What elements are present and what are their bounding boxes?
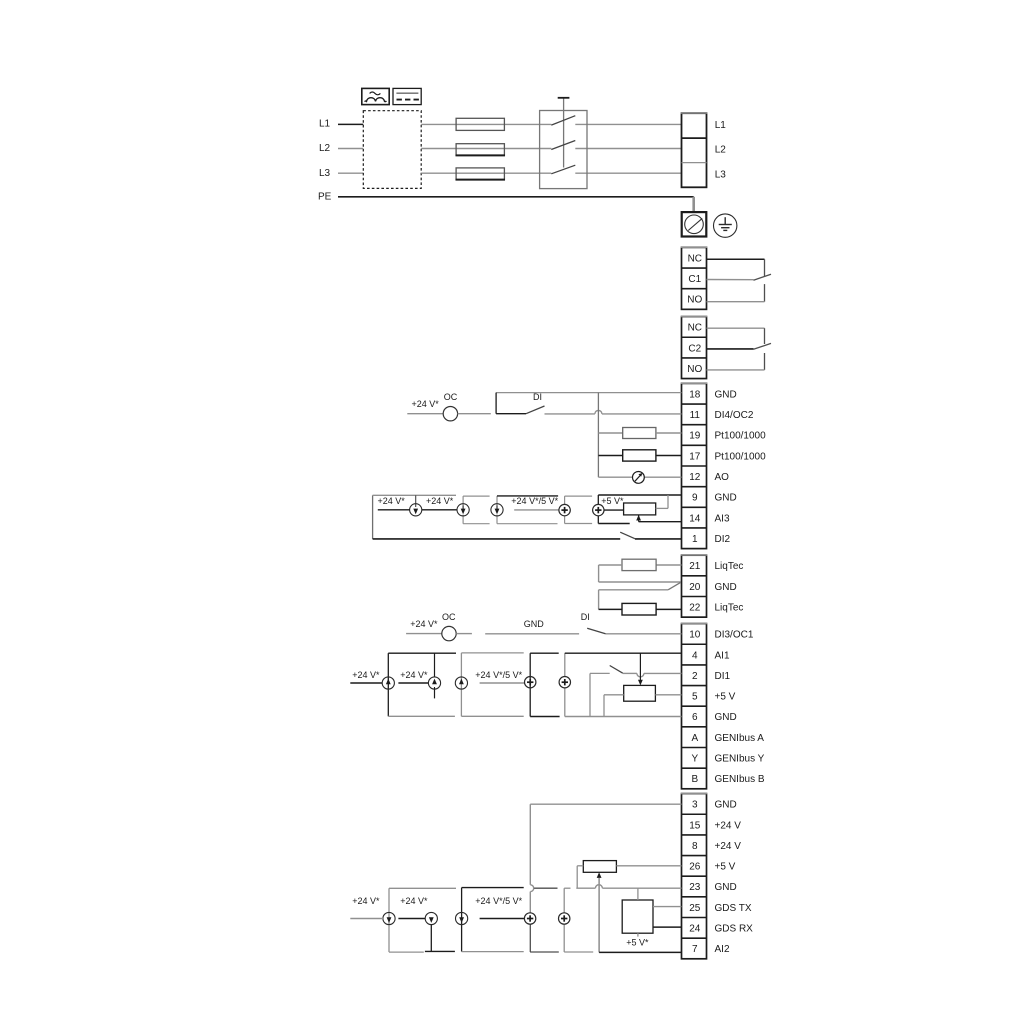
- svg-text:+24 V*: +24 V*: [352, 670, 380, 680]
- svg-text:+24 V*/5 V*: +24 V*/5 V*: [475, 670, 522, 680]
- svg-text:OC: OC: [442, 612, 456, 622]
- svg-text:DI4/OC2: DI4/OC2: [715, 410, 754, 421]
- svg-text:8: 8: [692, 841, 698, 852]
- svg-text:24: 24: [689, 924, 701, 935]
- svg-text:GND: GND: [715, 389, 737, 400]
- svg-text:+24 V*: +24 V*: [352, 896, 380, 906]
- svg-text:GND: GND: [715, 800, 737, 811]
- svg-text:AI2: AI2: [715, 944, 730, 955]
- svg-text:10: 10: [689, 630, 701, 641]
- svg-text:22: 22: [689, 603, 701, 614]
- svg-text:L3: L3: [715, 170, 727, 181]
- svg-text:NC: NC: [688, 323, 702, 334]
- svg-text:Pt100/1000: Pt100/1000: [715, 451, 767, 462]
- svg-text:L1: L1: [715, 120, 727, 131]
- svg-text:C2: C2: [688, 343, 701, 354]
- svg-text:NC: NC: [688, 253, 702, 264]
- svg-text:GENIbus B: GENIbus B: [715, 774, 765, 785]
- svg-text:AI1: AI1: [715, 650, 730, 661]
- svg-text:AO: AO: [715, 472, 730, 483]
- svg-text:C1: C1: [688, 274, 701, 285]
- svg-text:Y: Y: [691, 754, 698, 765]
- svg-text:PE: PE: [318, 192, 332, 203]
- svg-text:2: 2: [692, 671, 698, 682]
- svg-text:L2: L2: [715, 145, 727, 156]
- svg-text:DI: DI: [581, 612, 590, 622]
- svg-text:26: 26: [689, 862, 701, 873]
- svg-text:1: 1: [692, 534, 698, 545]
- svg-text:DI2: DI2: [715, 534, 731, 545]
- svg-text:12: 12: [689, 472, 701, 483]
- svg-text:GND: GND: [715, 582, 737, 593]
- svg-text:17: 17: [689, 451, 701, 462]
- svg-text:L2: L2: [319, 143, 331, 154]
- svg-text:+24 V*: +24 V*: [400, 670, 428, 680]
- svg-text:21: 21: [689, 561, 701, 572]
- svg-text:GND: GND: [715, 712, 737, 723]
- svg-text:25: 25: [689, 903, 701, 914]
- svg-text:3: 3: [692, 800, 698, 811]
- svg-text:AI3: AI3: [715, 513, 730, 524]
- svg-text:+24 V*: +24 V*: [378, 496, 406, 506]
- svg-text:GND: GND: [715, 882, 737, 893]
- svg-text:+24 V*: +24 V*: [412, 399, 440, 409]
- svg-text:+24 V*: +24 V*: [400, 896, 428, 906]
- svg-text:GND: GND: [715, 493, 737, 504]
- svg-text:15: 15: [689, 820, 701, 831]
- svg-text:NO: NO: [687, 364, 702, 375]
- svg-text:LiqTec: LiqTec: [715, 603, 744, 614]
- svg-text:L3: L3: [319, 168, 331, 179]
- svg-text:DI1: DI1: [715, 671, 731, 682]
- svg-text:+24 V: +24 V: [715, 841, 742, 852]
- svg-text:+5 V: +5 V: [715, 692, 736, 703]
- svg-text:DI: DI: [533, 392, 542, 402]
- svg-text:23: 23: [689, 882, 701, 893]
- svg-text:5: 5: [692, 692, 698, 703]
- svg-text:GDS RX: GDS RX: [715, 924, 754, 935]
- svg-text:9: 9: [692, 493, 698, 504]
- svg-text:GND: GND: [524, 619, 545, 629]
- svg-text:GDS TX: GDS TX: [715, 903, 752, 914]
- svg-text:+24 V*: +24 V*: [410, 619, 438, 629]
- svg-text:18: 18: [689, 389, 701, 400]
- svg-text:NO: NO: [687, 295, 702, 306]
- svg-text:DI3/OC1: DI3/OC1: [715, 630, 754, 641]
- svg-text:+24 V*/5 V*: +24 V*/5 V*: [475, 896, 522, 906]
- svg-text:6: 6: [692, 712, 698, 723]
- svg-text:+24 V*: +24 V*: [426, 496, 454, 506]
- svg-text:A: A: [691, 733, 698, 744]
- svg-text:B: B: [691, 774, 698, 785]
- svg-text:L1: L1: [319, 119, 331, 130]
- svg-text:14: 14: [689, 513, 701, 524]
- svg-text:+5 V*: +5 V*: [601, 496, 624, 506]
- svg-text:GENIbus A: GENIbus A: [715, 733, 765, 744]
- svg-text:+24 V*/5 V*: +24 V*/5 V*: [511, 496, 558, 506]
- svg-text:OC: OC: [444, 392, 458, 402]
- svg-text:4: 4: [692, 650, 698, 661]
- svg-text:11: 11: [690, 410, 701, 421]
- svg-text:20: 20: [689, 582, 701, 593]
- svg-text:7: 7: [692, 944, 698, 955]
- svg-text:+24 V: +24 V: [715, 820, 742, 831]
- svg-text:LiqTec: LiqTec: [715, 561, 744, 572]
- svg-text:+5 V: +5 V: [715, 862, 736, 873]
- svg-text:19: 19: [689, 431, 701, 442]
- svg-text:GENIbus Y: GENIbus Y: [715, 754, 765, 765]
- svg-text:+5 V*: +5 V*: [626, 937, 649, 947]
- svg-text:Pt100/1000: Pt100/1000: [715, 431, 767, 442]
